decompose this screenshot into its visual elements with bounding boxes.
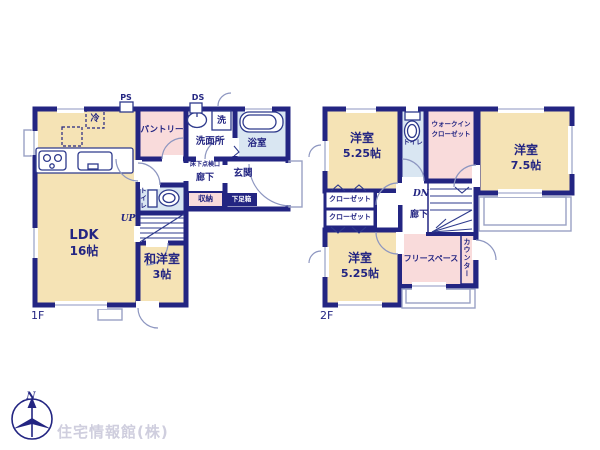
stairs-1f: [140, 214, 184, 242]
label-storage: 収納: [188, 195, 223, 203]
label-closet1: クローゼット: [326, 196, 374, 204]
label-wayoshitsu-name: 和洋室: [138, 253, 186, 266]
sink-faucet: [88, 164, 98, 169]
label-entrance: 玄関: [226, 169, 260, 180]
label-floor1: 1F: [31, 310, 57, 322]
burner-icon: [44, 155, 51, 162]
toilet1f-bowl-inner: [163, 194, 175, 203]
compass-north-label: N: [22, 391, 40, 402]
label-laundry: 洗: [212, 116, 231, 126]
label-ps: PS: [114, 94, 138, 103]
floorplan-graphic: [0, 0, 600, 450]
toilet1f-tank: [148, 190, 157, 207]
label-toilet-2f: トイレ: [398, 139, 428, 146]
label-hall-2f: 廊下: [404, 210, 434, 220]
balcony-south: [402, 289, 475, 308]
watermark-text: 住宅情報館(株): [57, 421, 169, 442]
entry-step: [98, 309, 122, 320]
label-wic-line1: ウォークイン: [427, 121, 475, 128]
label-bath: 浴室: [240, 139, 274, 150]
label-underfloor-hatch: 床下点検口: [183, 162, 227, 169]
label-stairs-up: UP: [118, 214, 138, 224]
label-wayoshitsu-size: 3帖: [138, 269, 186, 281]
label-bedroom-nw-name: 洋室: [332, 132, 392, 145]
room-ldk: [35, 109, 138, 305]
label-closet2: クローゼット: [326, 214, 374, 222]
label-toilet-1f: トイレ: [139, 187, 146, 213]
balcony-east: [479, 197, 571, 231]
label-hall-1f: 廊下: [190, 173, 220, 183]
label-pantry: パントリー: [136, 126, 188, 136]
label-washroom: 洗面所: [184, 137, 236, 148]
toilet2f-tank: [405, 112, 420, 120]
label-shoe-box: 下足箱: [226, 196, 257, 203]
ds-box: [190, 103, 202, 113]
label-bedroom-sw-name: 洋室: [330, 252, 390, 265]
label-ds: DS: [186, 94, 210, 103]
burner-icon: [50, 164, 54, 168]
label-bedroom-sw-size: 5.25帖: [330, 268, 390, 280]
ps-box: [120, 102, 133, 112]
label-ldk-name: LDK: [58, 229, 110, 244]
floorplan-page: PS DS 冷 パントリー 洗 洗面所 浴室 床下点検口 廊下 玄関 収納 下足…: [0, 0, 600, 450]
label-ldk-size: 16帖: [58, 245, 110, 258]
toilet2f-bowl-inner: [408, 125, 417, 138]
balcony-east-inner: [484, 197, 566, 225]
burner-icon: [55, 155, 62, 162]
bay-window-box: [24, 130, 31, 156]
compass-icon: [12, 397, 52, 439]
label-fridge: 冷: [86, 114, 104, 124]
label-wic-line2: クローゼット: [427, 131, 475, 138]
bathtub-inner: [243, 115, 276, 129]
label-counter: カウンター: [463, 238, 470, 284]
label-free-space: フリースペース: [398, 255, 464, 264]
label-stairs-down: DN: [410, 189, 432, 199]
balcony-south-inner: [406, 289, 470, 303]
label-floor2: 2F: [320, 310, 346, 322]
label-bedroom-e-name: 洋室: [496, 144, 556, 157]
label-bedroom-nw-size: 5.25帖: [332, 148, 392, 160]
label-bedroom-e-size: 7.5帖: [496, 160, 556, 172]
